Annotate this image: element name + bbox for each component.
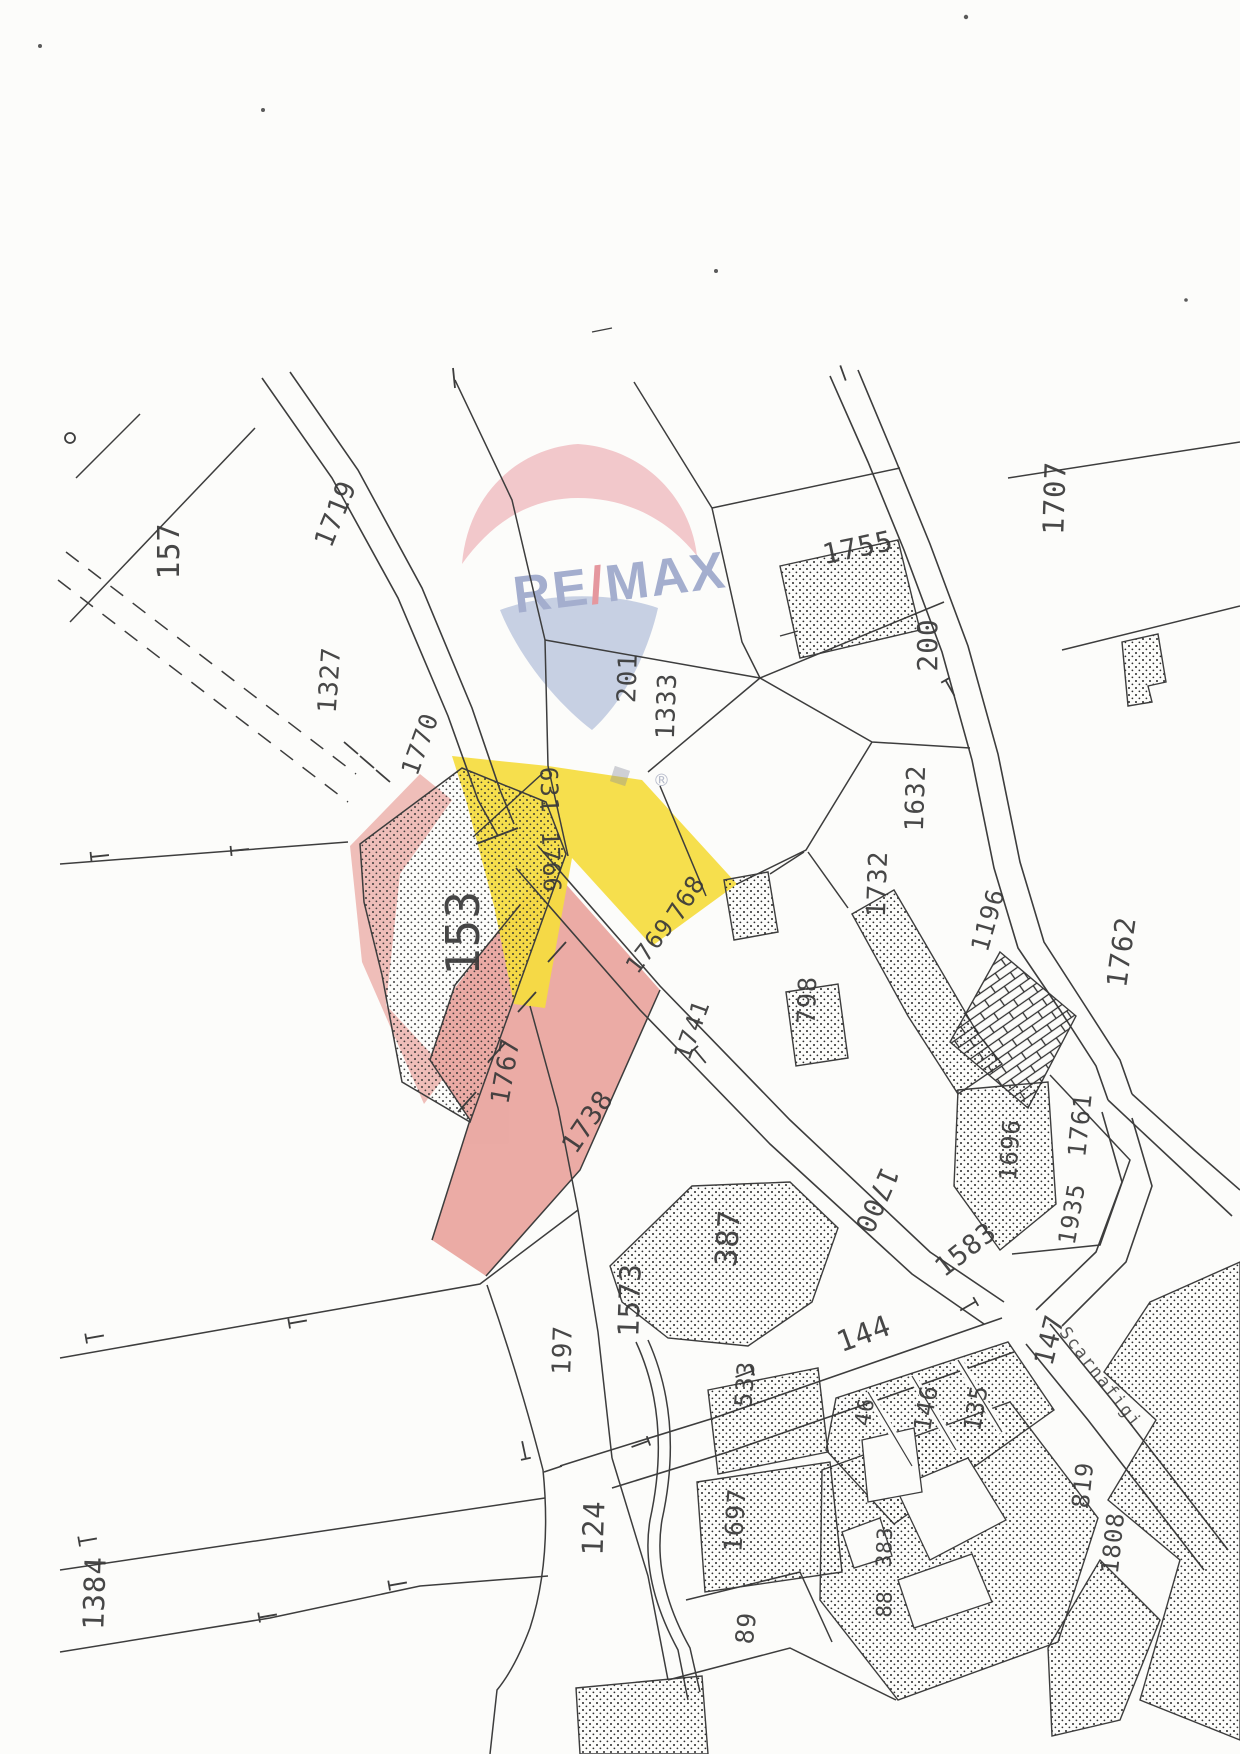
speck <box>714 269 718 273</box>
map-drawing: RE/MAX ® <box>0 0 1240 1754</box>
block-bottom-center <box>576 1676 708 1754</box>
building-798-north <box>724 872 778 940</box>
cadastral-map-scan: RE/MAX ® <box>0 0 1240 1754</box>
speck <box>1184 298 1188 302</box>
speck <box>38 44 42 48</box>
speck <box>261 108 265 112</box>
building-798-south <box>786 984 848 1066</box>
speck <box>964 15 968 19</box>
